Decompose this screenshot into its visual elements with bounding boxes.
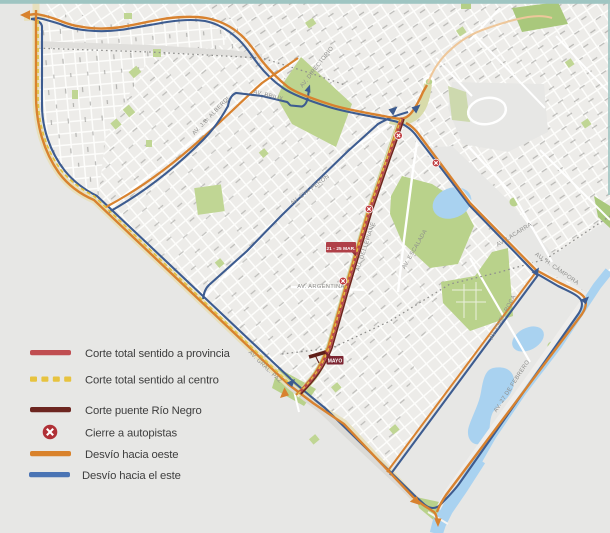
svg-text:AV. ARGENTINA: AV. ARGENTINA bbox=[297, 284, 344, 290]
svg-text:Desvío hacia el este: Desvío hacia el este bbox=[82, 470, 181, 482]
svg-text:Corte total sentido a provinci: Corte total sentido a provincia bbox=[85, 348, 231, 360]
svg-text:Desvío hacia oeste: Desvío hacia oeste bbox=[85, 449, 178, 461]
svg-text:Corte puente Río Negro: Corte puente Río Negro bbox=[85, 405, 202, 417]
svg-text:Cierre a autopistas: Cierre a autopistas bbox=[85, 428, 177, 440]
svg-text:21 - 25 MAR.: 21 - 25 MAR. bbox=[326, 246, 355, 251]
svg-text:Corte total sentido al centro: Corte total sentido al centro bbox=[85, 375, 219, 387]
svg-text:MAYO: MAYO bbox=[328, 359, 343, 365]
